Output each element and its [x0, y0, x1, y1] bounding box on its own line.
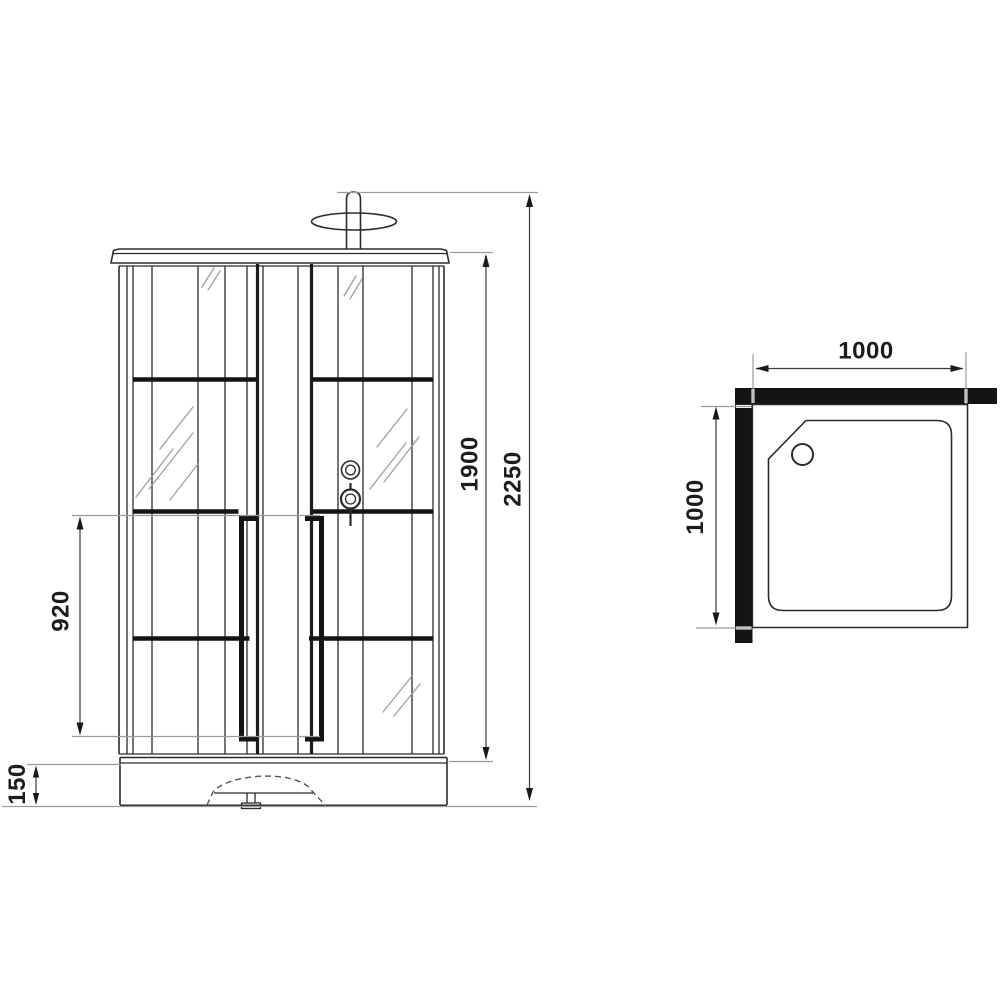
- tray-dome-hidden-line: [207, 776, 326, 806]
- front-view: [2, 192, 537, 809]
- shower-head-disc: [312, 213, 397, 230]
- total-height-label: 2250: [500, 451, 527, 506]
- drawing-canvas: 2250 1900 920 150: [0, 0, 1000, 1000]
- tray-width-label: 1000: [838, 338, 893, 365]
- left-wall-bar: [735, 388, 753, 643]
- shower-cabin-drawing: 2250 1900 920 150: [0, 0, 1000, 1000]
- cabin-height-label: 1900: [457, 436, 484, 491]
- top-wall-bar: [735, 388, 997, 404]
- shower-tray: [120, 758, 447, 809]
- top-cap: [111, 249, 449, 263]
- dimension-total-height: 2250: [337, 193, 538, 802]
- top-view: 1000 1000: [682, 338, 997, 644]
- tint-bands: [133, 380, 433, 639]
- handle-height-label: 920: [48, 590, 75, 632]
- glass-shine-marks: [136, 268, 420, 716]
- tray-depth-label: 1000: [682, 479, 709, 534]
- dimension-tray-width: 1000: [756, 338, 964, 373]
- right-door-handle: [305, 519, 322, 740]
- drain-hole: [792, 444, 813, 465]
- mixer-knobs: [341, 461, 360, 526]
- dimension-tray-height: 150: [4, 763, 121, 805]
- dimension-cabin-height: 1900: [449, 253, 493, 762]
- left-door-handle: [242, 519, 259, 740]
- dimension-tray-depth: 1000: [682, 407, 720, 626]
- tray-outer-outline: [735, 404, 968, 628]
- shower-head: [312, 192, 397, 249]
- dimension-handle-height: 920: [48, 516, 321, 737]
- shower-pipe: [347, 192, 361, 249]
- tray-height-label: 150: [4, 763, 31, 805]
